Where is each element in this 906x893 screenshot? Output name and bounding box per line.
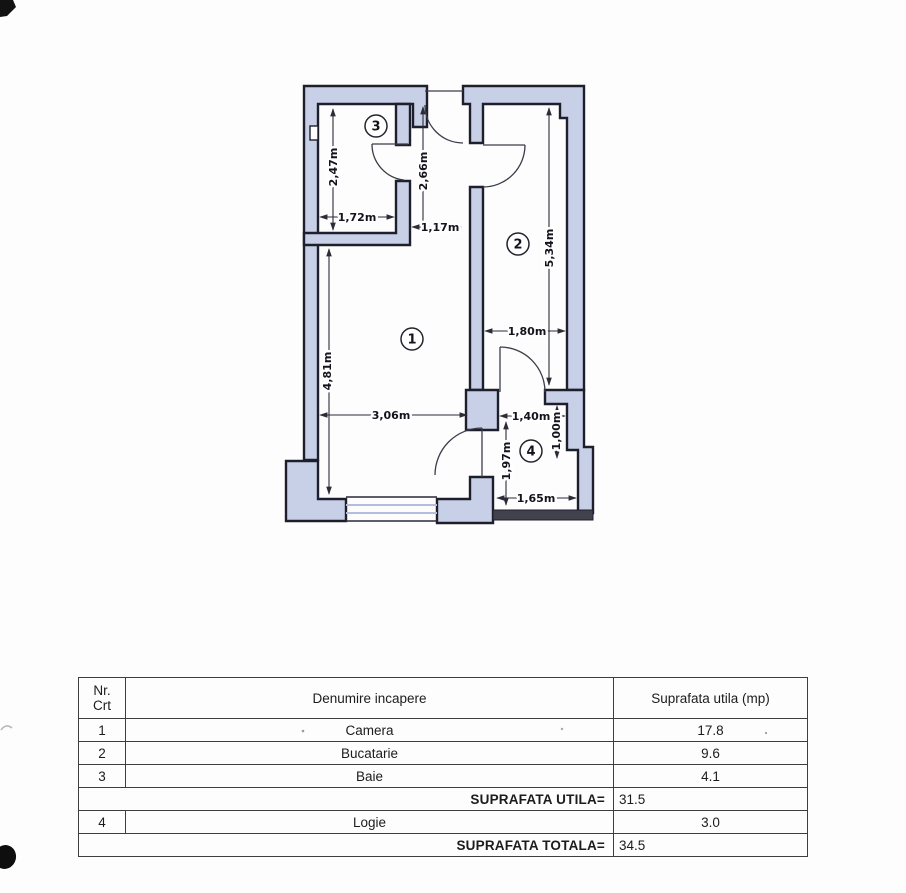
subtotal-value: 31.5 <box>614 788 808 811</box>
entrance-door <box>425 91 463 143</box>
room-marker-2: 2 <box>507 233 529 255</box>
scan-mark-left-edge <box>1 726 12 730</box>
table-row-bucatarie: 2 Bucatarie 9.6 <box>79 742 808 765</box>
dim-logie-top-width: 1,40m <box>512 410 551 423</box>
header-crt: Crt <box>83 698 121 713</box>
baie-door <box>372 144 408 180</box>
total-value: 34.5 <box>614 834 808 857</box>
cell-nr: 1 <box>79 719 126 742</box>
dim-hall-width: 1,17m <box>421 221 460 234</box>
dim-camera-width: 3,06m <box>372 409 411 422</box>
dim-baie-height: 2,47m <box>327 148 340 187</box>
area-table: Nr. Crt Denumire incapere Suprafata util… <box>78 677 808 857</box>
header-suprafata: Suprafata utila (mp) <box>614 678 808 719</box>
wall-pier-bottom-left <box>286 461 346 521</box>
svg-text:4: 4 <box>526 445 535 460</box>
cell-name: Camera <box>126 719 614 742</box>
room-marker-3: 3 <box>365 115 387 137</box>
cell-area: 4.1 <box>614 765 808 788</box>
room1-logie-door <box>435 428 482 477</box>
dim-logie-right-height: 1,00m <box>550 412 563 451</box>
wall-baie-right-upper <box>396 104 410 145</box>
logie-railing <box>493 510 593 520</box>
table-row-total: SUPRAFATA TOTALA= 34.5 <box>79 834 808 857</box>
scan-mark-top-left <box>0 0 16 17</box>
wall-shaft-notch <box>310 126 318 140</box>
wall-pier-bottom-center <box>437 477 493 523</box>
scanned-document-page: 2,47m 1,72m 2,66m 1,17m 4,81m 3,06m 5,34… <box>0 0 906 893</box>
dim-logie-bottom-width: 1,65m <box>517 492 556 505</box>
cell-name: Bucatarie <box>126 742 614 765</box>
cell-area: 17.8 <box>614 719 808 742</box>
cell-name: Baie <box>126 765 614 788</box>
wall-divider-room1-room2 <box>470 187 483 390</box>
room-marker-1: 1 <box>401 328 423 350</box>
cell-area: 9.6 <box>614 742 808 765</box>
cell-nr: 4 <box>79 811 126 834</box>
dim-camera-height: 4,81m <box>321 352 334 391</box>
window-room1 <box>346 497 437 521</box>
total-label: SUPRAFATA TOTALA= <box>79 834 614 857</box>
header-nr-crt: Nr. Crt <box>79 678 126 719</box>
dim-logie-left-height: 1,97m <box>500 442 513 481</box>
wall-divider-block <box>466 390 498 430</box>
table-header-row: Nr. Crt Denumire incapere Suprafata util… <box>79 678 808 719</box>
table-row-camera: 1 Camera 17.8 <box>79 719 808 742</box>
cell-nr: 2 <box>79 742 126 765</box>
table-row-baie: 3 Baie 4.1 <box>79 765 808 788</box>
cell-name: Logie <box>126 811 614 834</box>
subtotal-label: SUPRAFATA UTILA= <box>79 788 614 811</box>
table-row-subtotal: SUPRAFATA UTILA= 31.5 <box>79 788 808 811</box>
dim-baie-width: 1,72m <box>338 211 377 224</box>
header-denumire: Denumire incapere <box>126 678 614 719</box>
dim-bucatarie-width: 1,80m <box>508 325 547 338</box>
header-nr: Nr. <box>83 683 121 698</box>
room-marker-4: 4 <box>520 440 542 462</box>
table-row-logie: 4 Logie 3.0 <box>79 811 808 834</box>
svg-text:3: 3 <box>371 120 380 135</box>
scan-mark-bottom-left <box>0 843 19 872</box>
dim-bucatarie-height: 5,34m <box>543 229 556 268</box>
svg-text:1: 1 <box>407 333 416 348</box>
svg-text:2: 2 <box>513 238 522 253</box>
cell-nr: 3 <box>79 765 126 788</box>
bucatarie-logie-door <box>500 347 545 392</box>
bucatarie-door <box>483 145 525 187</box>
dim-hall-height: 2,66m <box>417 152 430 191</box>
cell-area: 3.0 <box>614 811 808 834</box>
